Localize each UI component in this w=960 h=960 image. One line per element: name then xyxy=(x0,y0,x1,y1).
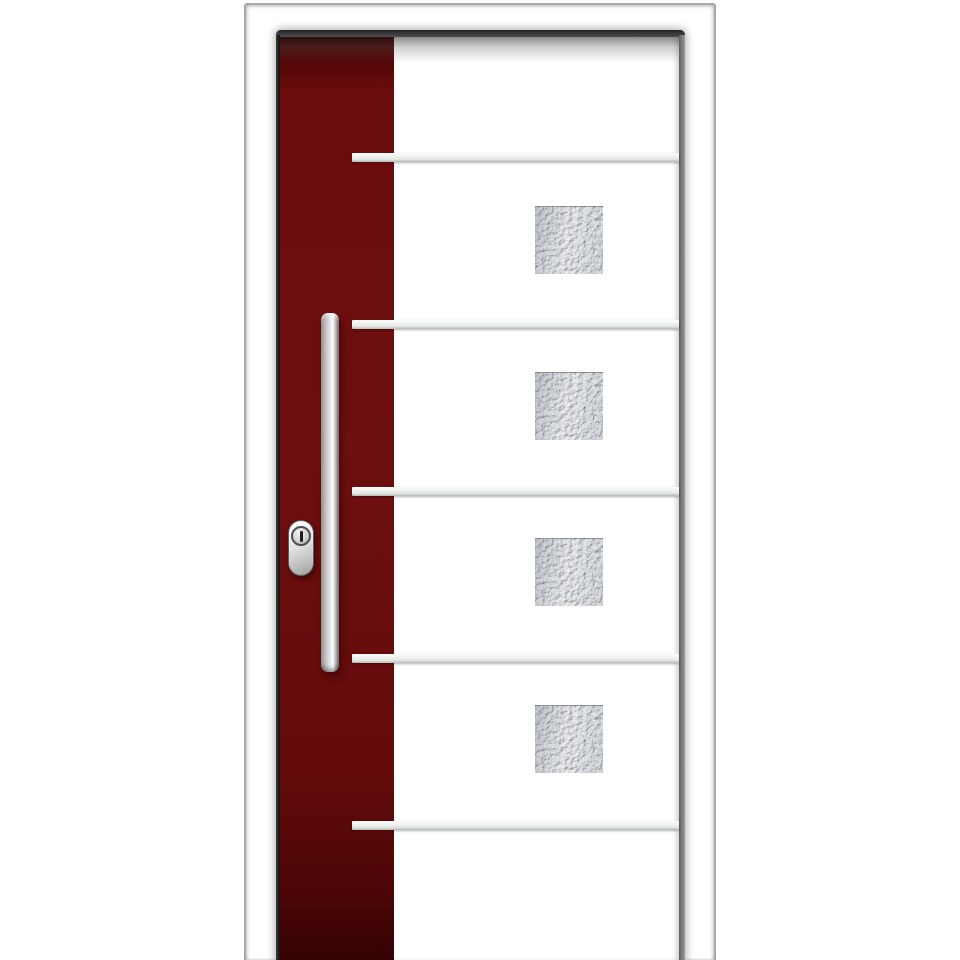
door-rebate-top-edge xyxy=(276,30,685,37)
keyhole-icon xyxy=(300,531,303,542)
glass-panel-3 xyxy=(535,538,603,606)
door-opening xyxy=(276,30,685,960)
aluminum-strip-3 xyxy=(352,487,679,496)
lock-cylinder xyxy=(291,526,311,546)
aluminum-strip-5 xyxy=(352,821,679,830)
glass-panel-4 xyxy=(535,705,603,773)
lock-escutcheon xyxy=(288,520,314,576)
aluminum-strip-2 xyxy=(352,320,679,329)
aluminum-strip-4 xyxy=(352,654,679,663)
bar-handle xyxy=(321,313,339,672)
product-photo-door xyxy=(0,0,960,960)
glass-panel-1 xyxy=(535,206,603,274)
door-leaf xyxy=(280,37,679,960)
door-leaf-right-edge xyxy=(679,35,685,960)
glass-panel-2 xyxy=(535,372,603,440)
aluminum-strip-1 xyxy=(352,153,679,162)
